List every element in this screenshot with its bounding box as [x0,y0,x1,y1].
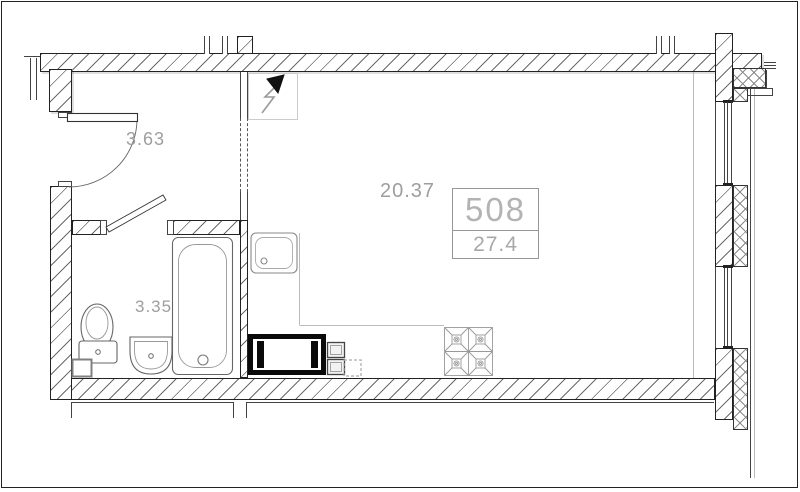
planned-unit-dashed-icon [344,360,361,376]
bathtub-icon [173,238,233,375]
bathroom-area-label: 3.35 [135,297,172,317]
fixtures-layer [0,0,800,492]
unit-area: 27.4 [453,230,538,258]
bathroom-corner-duct [73,360,92,377]
wash-basin-icon [130,337,172,374]
entry-door [68,114,138,188]
kitchen-sink-icon [251,233,297,273]
toilet-icon [79,304,117,363]
washing-machine-icon [251,337,324,373]
unit-card: 508 27.4 [452,188,539,259]
stove-icon [445,328,493,376]
cabinet-modules-icon [328,343,345,375]
electric-panel-icon [262,75,284,113]
bathroom-door [106,195,166,232]
unit-number: 508 [453,189,538,230]
hallway-area-label: 3.63 [126,129,165,150]
living-area-label: 20.37 [380,180,435,203]
floor-plan: 3.63 3.35 20.37 508 27.4 [0,0,800,492]
kitchen-counter-line [300,233,445,326]
